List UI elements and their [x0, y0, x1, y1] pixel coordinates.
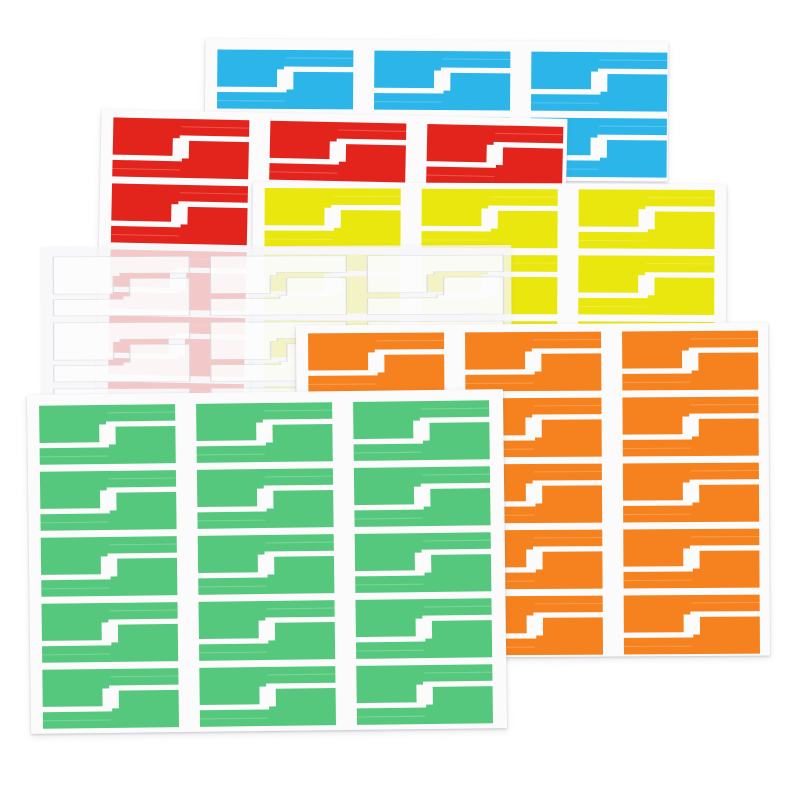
green-label-pair [197, 468, 334, 529]
orange-label-pair [623, 463, 759, 523]
blue-label-pair [217, 49, 353, 109]
orange-label-pair [308, 333, 444, 393]
green-label-pair [199, 666, 336, 727]
orange-label-pair [624, 595, 760, 655]
red-label-pair [112, 117, 249, 179]
red-label-pair [111, 183, 248, 245]
green-label-pair [196, 402, 333, 463]
green-label-pair [42, 668, 179, 729]
green-label-pair [355, 532, 492, 593]
transparent-label-pair [210, 256, 346, 316]
product-photo-scene [0, 0, 800, 800]
yellow-label-pair [578, 255, 714, 315]
green-label-pair [198, 600, 335, 661]
yellow-label-pair [421, 189, 557, 249]
green-label-pair [39, 404, 176, 465]
blue-label-pair [531, 52, 667, 112]
green-label-pair [356, 664, 493, 725]
red-label-pair [269, 121, 406, 183]
transparent-label-pair [54, 322, 190, 382]
yellow-label-pair [578, 189, 714, 249]
green-label-sheet [27, 389, 507, 734]
orange-label-pair [465, 332, 601, 392]
transparent-label-pair [53, 256, 189, 316]
green-label-pair [355, 598, 492, 659]
green-label-pair [41, 602, 178, 663]
green-label-pair [40, 470, 177, 531]
orange-label-pair [622, 397, 758, 457]
green-label-pair [198, 534, 335, 595]
orange-label-pair [623, 529, 759, 589]
blue-label-pair [374, 51, 510, 111]
green-label-pair [41, 536, 178, 597]
green-label-pair [354, 466, 491, 527]
green-label-pair [353, 400, 490, 461]
transparent-label-pair [367, 255, 503, 315]
yellow-label-pair [264, 188, 400, 248]
red-label-pair [426, 124, 563, 186]
orange-label-pair [622, 331, 758, 391]
